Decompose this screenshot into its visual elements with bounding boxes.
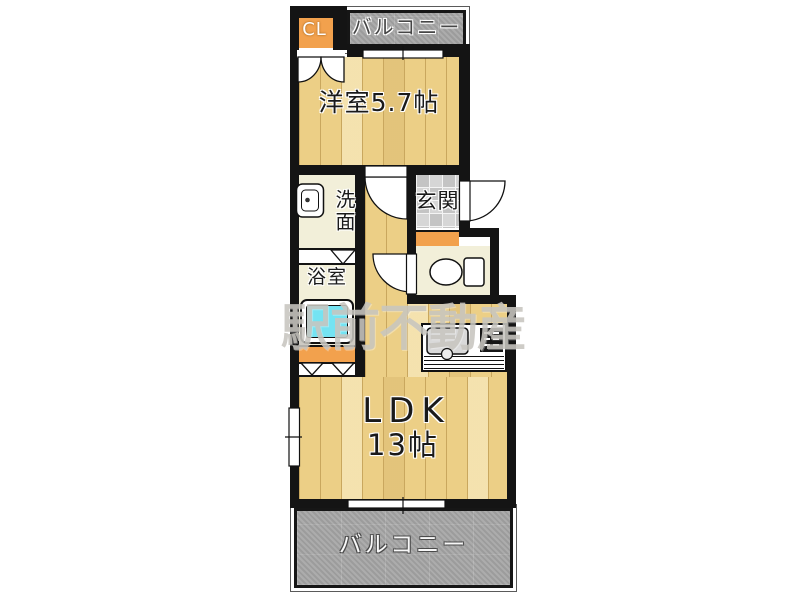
wall-bottom [290, 499, 516, 508]
balcony-bottom-label: バルコニー [294, 533, 513, 557]
window-left [289, 408, 300, 466]
wall-western-room-bottom [290, 165, 470, 175]
wall-right-upper [459, 44, 470, 175]
realty-watermark: 駅前不動産 [281, 288, 526, 360]
wall-closet-balcony-divider [333, 6, 347, 50]
entrance-door-arc-icon [465, 181, 505, 221]
hallway-floor [365, 175, 407, 304]
washroom-label: 洗面 [328, 183, 354, 239]
wall-balcony-room [347, 44, 470, 57]
ldk-label-line1: LDK [330, 394, 476, 430]
balcony-top-label: バルコニー [347, 17, 466, 38]
bathroom-folding-door-band [299, 248, 355, 265]
ldk-closet-folding-door-band [299, 362, 355, 377]
floor-plan: CL バルコニー 洋室5.7帖 洗面 玄関 浴室 LDK 13帖 バルコニー 駅… [0, 0, 800, 600]
bathroom-label: 浴室 [300, 268, 354, 288]
ldk-label: LDK 13帖 [330, 394, 476, 460]
western-room-label: 洋室5.7帖 [300, 90, 458, 116]
ldk-label-line2: 13帖 [330, 430, 476, 460]
closet-label: CL [296, 21, 333, 40]
entrance-label: 玄関 [412, 190, 463, 212]
